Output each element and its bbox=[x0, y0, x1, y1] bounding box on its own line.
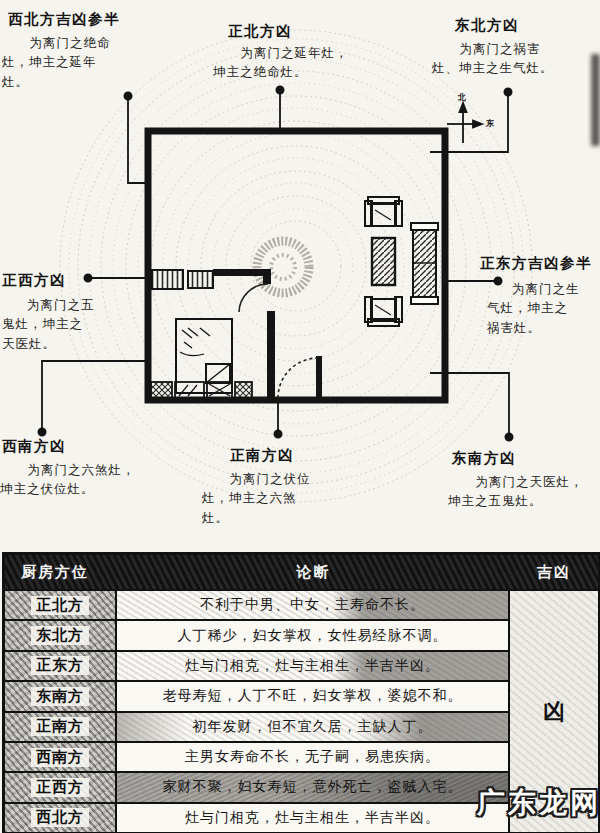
direction-cell: 西北方 bbox=[5, 804, 117, 832]
label-southwest-title: 西南方凶 bbox=[2, 437, 66, 456]
compass-icon bbox=[447, 103, 482, 143]
table-row: 正北方 不利于中男、中女，主寿命不长。 bbox=[5, 589, 508, 619]
entrance-door-panel bbox=[316, 356, 322, 400]
label-northeast-desc: 为离门之祸害灶、坤主之生气灶。 bbox=[432, 40, 554, 79]
label-southeast-title: 东南方凶 bbox=[452, 449, 516, 468]
header-judgment: 论断 bbox=[117, 563, 510, 582]
judgment-cell: 不利于中男、中女，主寿命不长。 bbox=[117, 591, 508, 619]
header-verdict: 吉凶 bbox=[510, 563, 598, 582]
table-row: 正南方 初年发财，但不宜久居，主缺人丁。 bbox=[5, 711, 508, 741]
interior-wall-stub bbox=[263, 269, 271, 284]
luopan-speckle bbox=[69, 39, 523, 493]
direction-text: 东南方 bbox=[31, 687, 89, 706]
counter-stove bbox=[188, 271, 213, 288]
table-row: 东南方 老母寿短，人丁不旺，妇女掌权，婆媳不和。 bbox=[5, 680, 508, 710]
leader-lines bbox=[38, 86, 512, 440]
direction-cell: 正东方 bbox=[5, 652, 117, 680]
label-west-title: 正西方凶 bbox=[2, 271, 66, 290]
label-northwest-desc: 为离门之绝命灶，坤主之延年灶。 bbox=[2, 34, 122, 92]
judgment-cell: 家财不聚，妇女寿短，意外死亡，盗贼入宅。 bbox=[117, 773, 508, 801]
luopan-center bbox=[257, 241, 309, 293]
label-east-desc: 为离门之生气灶，坤主之祸害灶。 bbox=[487, 280, 581, 338]
table-row: 东北方 人丁稀少，妇女掌权，女性易经脉不调。 bbox=[5, 619, 508, 649]
label-north-title: 正北方凶 bbox=[228, 22, 292, 41]
label-southwest-desc: 为离门之六煞灶，坤主之伏位灶。 bbox=[0, 461, 140, 500]
direction-text: 正东方 bbox=[31, 656, 89, 675]
direction-text: 东北方 bbox=[31, 626, 89, 645]
judgment-cell: 初年发财，但不宜久居，主缺人丁。 bbox=[117, 713, 508, 741]
scan-smudge bbox=[591, 54, 600, 146]
armchair-top bbox=[365, 197, 402, 226]
table-row: 西南方 主男女寿命不长，无子嗣，易患疾病。 bbox=[5, 741, 508, 771]
label-south-title: 正南方凶 bbox=[230, 446, 294, 465]
label-east-title: 正东方吉凶参半 bbox=[480, 254, 592, 273]
table-left-columns: 正北方 不利于中男、中女，主寿命不长。 东北方 人丁稀少，妇女掌权，女性易经脉不… bbox=[5, 589, 508, 832]
label-west-desc: 为离门之五鬼灶，坤主之天医灶。 bbox=[2, 296, 96, 354]
label-northwest-title: 西北方吉凶参半 bbox=[8, 10, 120, 29]
table-row: 正东方 灶与门相克，灶与主相生，半吉半凶。 bbox=[5, 650, 508, 680]
outer-wall bbox=[148, 131, 445, 400]
label-south-desc: 为离门之伏位灶，坤主之六煞灶。 bbox=[202, 470, 320, 528]
direction-cell: 东北方 bbox=[5, 621, 117, 649]
counter-sink bbox=[152, 270, 183, 289]
judgment-cell: 灶与门相克，灶与主相生，半吉半凶。 bbox=[117, 652, 508, 680]
interior-wall-v bbox=[267, 311, 275, 401]
direction-text: 正北方 bbox=[31, 596, 89, 615]
watermark: 广东龙网 bbox=[477, 784, 600, 822]
direction-text: 西北方 bbox=[31, 808, 89, 827]
interior-wall-h bbox=[213, 269, 270, 276]
direction-text: 正南方 bbox=[31, 717, 89, 736]
direction-text: 西南方 bbox=[31, 748, 89, 767]
scanned-fengshui-page: { "diagram": { "compass": { "north_label… bbox=[0, 0, 600, 833]
coffee-table bbox=[372, 238, 395, 285]
header-direction: 厨房方位 bbox=[5, 563, 117, 582]
label-northeast-title: 东北方凶 bbox=[455, 16, 519, 35]
direction-cell: 西南方 bbox=[5, 743, 117, 771]
direction-cell: 正西方 bbox=[5, 773, 117, 801]
judgment-cell: 主男女寿命不长，无子嗣，易患疾病。 bbox=[117, 743, 508, 771]
direction-cell: 正南方 bbox=[5, 713, 117, 741]
judgment-cell: 老母寿短，人丁不旺，妇女掌权，婆媳不和。 bbox=[117, 682, 508, 710]
kitchen-door-arc bbox=[239, 284, 268, 312]
armchair-bottom bbox=[365, 297, 402, 326]
direction-cell: 东南方 bbox=[5, 682, 117, 710]
label-northwest: 西北方吉凶参半 bbox=[8, 10, 120, 29]
label-southeast-desc: 为离门之天医灶，坤主之五鬼灶。 bbox=[448, 473, 590, 512]
label-north-desc: 为离门之延年灶，坤主之绝命灶。 bbox=[213, 44, 349, 83]
table-header-row: 厨房方位 论断 吉凶 bbox=[5, 555, 598, 589]
judgment-cell: 灶与门相克，灶与主相生，半吉半凶。 bbox=[117, 804, 508, 832]
verdict-text: 凶 bbox=[543, 697, 565, 727]
direction-cell: 正北方 bbox=[5, 591, 117, 619]
sofa bbox=[411, 223, 438, 304]
entrance-door-arc bbox=[278, 358, 318, 398]
compass-east-label: 东 bbox=[486, 118, 494, 129]
direction-text: 正西方 bbox=[31, 778, 89, 797]
table-row: 西北方 灶与门相克，灶与主相生，半吉半凶。 bbox=[5, 802, 508, 832]
table-row: 正西方 家财不聚，妇女寿短，意外死亡，盗贼入宅。 bbox=[5, 771, 508, 801]
compass-north-label: 北 bbox=[458, 92, 466, 103]
judgment-cell: 人丁稀少，妇女掌权，女性易经脉不调。 bbox=[117, 621, 508, 649]
kitchen-appliances bbox=[151, 382, 252, 398]
